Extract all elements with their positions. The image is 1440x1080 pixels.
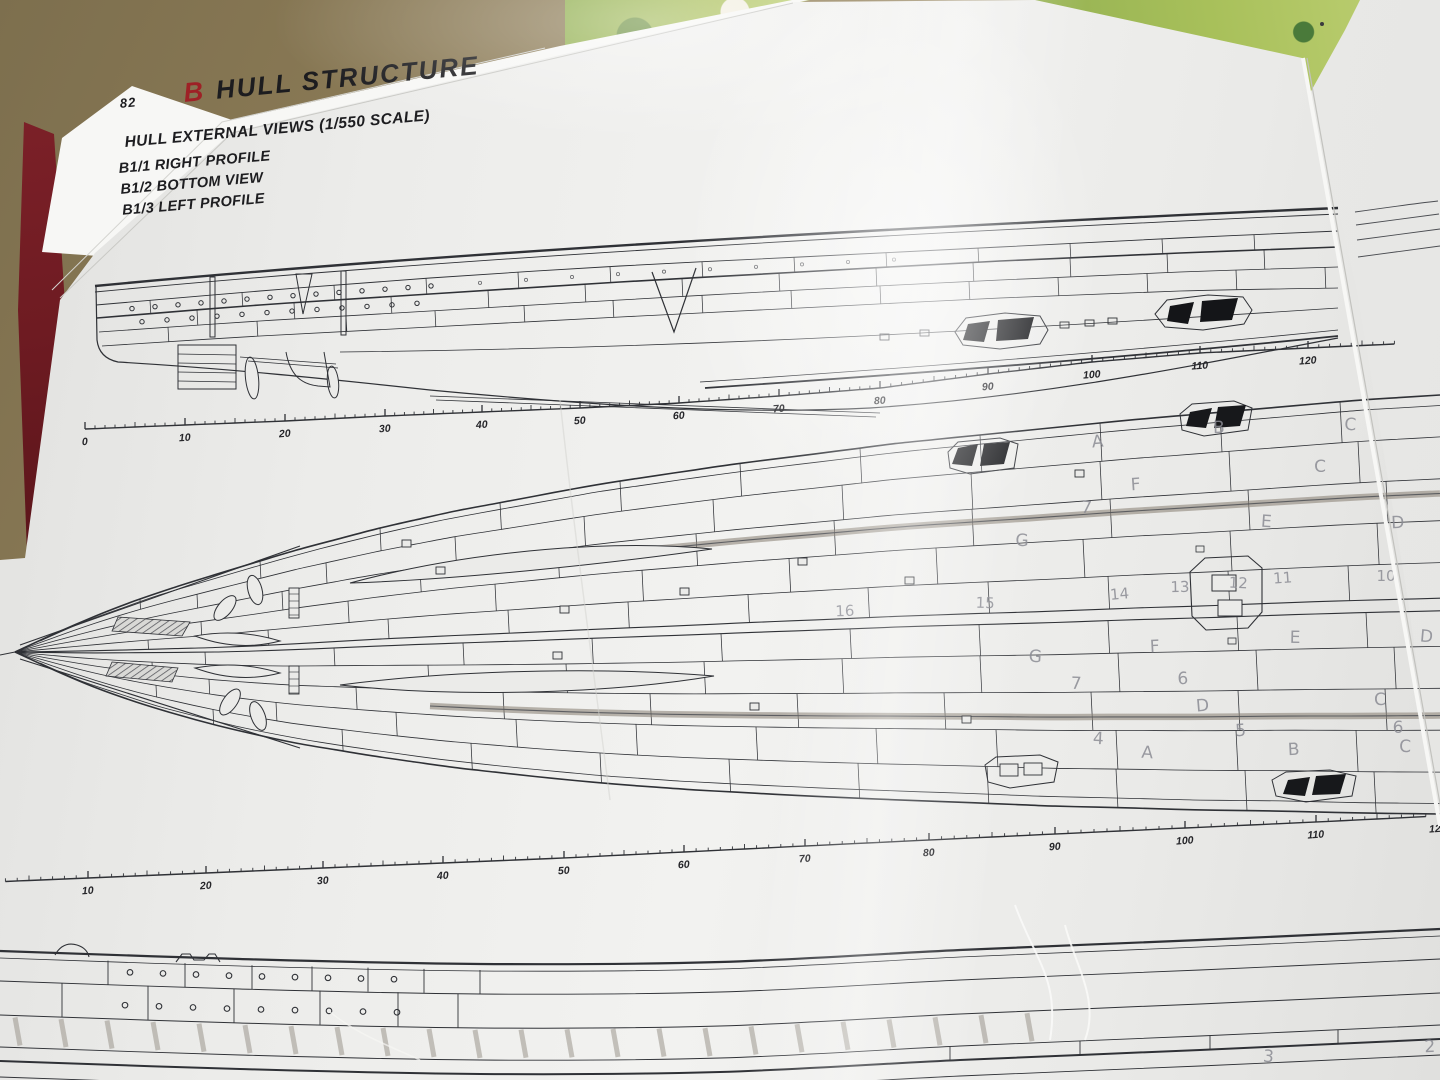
plate-butt (197, 594, 198, 608)
porthole (314, 292, 318, 296)
strut-ladder (289, 588, 299, 618)
plate-butt (850, 629, 852, 659)
sheer-seam (96, 231, 1338, 305)
top-ruler-label: 100 (1083, 368, 1101, 381)
pencil-mark: 6 (1393, 718, 1404, 738)
porthole (662, 270, 665, 273)
plate-butt (740, 463, 742, 496)
plate-butt (620, 481, 622, 511)
plate-butt (1356, 730, 1358, 771)
stern-post (210, 277, 215, 337)
porthole (429, 284, 433, 288)
view-list: B1/1 RIGHT PROFILE B1/2 BOTTOM VIEW B1/3… (118, 146, 275, 222)
plate-butt (524, 306, 525, 322)
plate-butt (1394, 647, 1396, 689)
pencil-mark: 7 (1070, 674, 1082, 694)
plate-butt (980, 435, 982, 472)
middle-ruler-label: 20 (199, 880, 213, 893)
plate-butt (996, 730, 998, 767)
bilge-keel-band (430, 706, 1440, 717)
propeller-plan (216, 686, 245, 719)
plate-butt (876, 268, 877, 286)
frame-stripe (337, 1027, 342, 1055)
plate-butt (971, 473, 973, 510)
middle-ruler-label: 110 (1307, 828, 1325, 841)
plate-butt (794, 257, 795, 272)
middle-ruler-label: 90 (1049, 841, 1062, 854)
pencil-mark: C (1399, 737, 1411, 757)
plate-butt (972, 509, 974, 546)
frame-stripe (613, 1029, 618, 1057)
top-ruler-label: 70 (773, 403, 786, 416)
plate-seam (0, 1025, 1440, 1060)
porthole (394, 1009, 400, 1015)
middle-ruler-line (5, 817, 1425, 882)
left-profile-drawing (0, 929, 1440, 1080)
plate-butt (435, 311, 436, 327)
plate-butt (973, 262, 974, 281)
plate-butt (868, 588, 870, 618)
anchor-pocket (1283, 777, 1310, 796)
frame-stripe (935, 1017, 940, 1045)
fairlead (1108, 318, 1117, 324)
deck-inner-line (95, 214, 1338, 292)
pencil-mark: 14 (1109, 584, 1130, 604)
plate-butt (636, 724, 638, 755)
page-number: 82 (119, 94, 137, 110)
vent-fitting (553, 652, 562, 659)
plate-butt (876, 728, 878, 763)
plate-butt (1230, 531, 1232, 571)
porthole (122, 1002, 128, 1008)
pencil-mark: D (1419, 626, 1434, 647)
plate-butt (518, 272, 519, 288)
pencil-mark: F (1149, 637, 1160, 657)
rudder-plan (195, 665, 280, 678)
top-ruler-label: 40 (475, 419, 489, 432)
plate-butt (463, 643, 464, 665)
plate-butt (426, 278, 427, 294)
frame-stripe (751, 1026, 756, 1054)
plate-butt (1116, 769, 1118, 808)
top-ruler-label: 90 (982, 381, 995, 394)
porthole (360, 289, 364, 293)
porthole (358, 976, 364, 982)
plate-butt (1058, 277, 1059, 295)
propeller-plan (244, 574, 265, 607)
frame-stripe (889, 1020, 894, 1048)
anchor-pocket (1200, 298, 1238, 322)
plate-butt (1162, 239, 1163, 254)
plate-seam (0, 993, 1440, 1028)
vent-fitting (962, 716, 971, 723)
porthole (265, 310, 269, 314)
page-edge-highlight (1303, 58, 1440, 826)
middle-ruler-label: 30 (317, 875, 330, 888)
pencil-mark: D (1391, 513, 1405, 534)
plate-butt (980, 656, 982, 693)
plate-butt (488, 290, 489, 307)
plate-butt (886, 253, 887, 268)
porthole (160, 971, 166, 977)
plate-butt (702, 262, 703, 278)
porthole (892, 258, 895, 261)
porthole (190, 1005, 196, 1011)
pencil-mark: C (1344, 415, 1357, 436)
porthole (315, 307, 319, 311)
porthole (415, 301, 419, 305)
plate-butt (334, 648, 335, 666)
anchor-pocket (1167, 302, 1194, 324)
plate-butt (242, 293, 243, 307)
plate-butt (702, 295, 703, 312)
plate-butt (842, 659, 844, 694)
pencil-mark: E (1290, 628, 1301, 648)
hawse-octagon (985, 755, 1058, 788)
plate-butt (748, 595, 749, 623)
pencil-mark: B (1213, 418, 1225, 438)
plate-butt (600, 753, 602, 783)
plating-seam (15, 646, 1440, 666)
hull-bottom-line (96, 286, 1338, 410)
vent-fitting (1075, 470, 1084, 477)
porthole (199, 301, 203, 305)
plate-butt (205, 652, 206, 664)
porthole (524, 278, 527, 281)
frame-stripe (981, 1015, 986, 1043)
sheer-seam (97, 247, 1338, 318)
plate-butt (642, 570, 644, 601)
plate-butt (391, 297, 392, 314)
plate-butt (1108, 621, 1110, 654)
stern-post (341, 271, 346, 335)
frame-stripe (107, 1021, 112, 1049)
plate-butt (348, 601, 349, 623)
plate-butt (729, 759, 731, 792)
page-crease (560, 400, 610, 800)
plate-butt (1254, 235, 1255, 250)
plate-butt (150, 300, 151, 313)
frame-stripe (797, 1024, 802, 1052)
hawse-plate (1024, 763, 1042, 775)
deck-edge-line (0, 929, 1440, 964)
frame-stripe (153, 1022, 158, 1050)
plate-butt (356, 688, 357, 710)
plate-butt (756, 727, 758, 760)
pencil-mark: G (1015, 531, 1029, 551)
middle-ruler-label: 60 (678, 859, 691, 872)
plate-butt (842, 485, 844, 520)
plate-butt (1118, 653, 1120, 692)
frame-stripe (61, 1019, 66, 1047)
photographed-book-page: 0102030405060708090100110120102030405060… (0, 0, 1440, 1080)
stern-grid-line (178, 354, 236, 355)
middle-ruler-label: 50 (558, 865, 571, 878)
small-fitting (1228, 638, 1236, 644)
top-ruler-label: 50 (574, 415, 587, 428)
porthole (325, 975, 331, 981)
small-fitting (1196, 546, 1204, 552)
skeg-fin (106, 662, 178, 682)
frame-stripe (567, 1029, 572, 1057)
deck-inner-line (0, 936, 1440, 971)
paper-speck (1320, 22, 1324, 26)
porthole (754, 265, 757, 268)
porthole (259, 974, 265, 980)
davit-triangle (296, 274, 312, 314)
vent-fitting (905, 577, 914, 584)
middle-ruler-label: 10 (82, 885, 95, 898)
porthole (290, 309, 294, 313)
pencil-mark: A (1091, 432, 1105, 453)
plate-butt (682, 279, 683, 297)
pencil-mark: B (1287, 740, 1300, 761)
boot-top-line (0, 1039, 1440, 1074)
plate-butt (508, 610, 509, 633)
plate-butt (1091, 692, 1093, 730)
shaft-bossing (340, 671, 714, 693)
vent-fitting (560, 606, 569, 613)
frame-stripe (843, 1022, 848, 1050)
porthole (406, 285, 410, 289)
plate-butt (516, 720, 517, 747)
porthole (127, 970, 133, 976)
plate-butt (257, 321, 258, 336)
vent-fitting (436, 567, 445, 574)
plate-butt (978, 248, 979, 262)
bottom-view-drawing (0, 395, 1440, 814)
porthole (224, 1006, 230, 1012)
rudder (286, 352, 330, 387)
scratch-mark (1065, 925, 1090, 1040)
plate-butt (276, 702, 277, 720)
frame-stripe (475, 1030, 480, 1058)
plate-butt (1147, 273, 1148, 292)
frame-stripe (199, 1024, 204, 1052)
porthole (153, 304, 157, 308)
vent-fitting (680, 588, 689, 595)
propeller (243, 356, 260, 399)
pencil-mark: C (1374, 690, 1386, 710)
plate-butt (1167, 254, 1168, 273)
plate-butt (1245, 771, 1247, 811)
porthole (846, 260, 849, 263)
porthole (240, 312, 244, 316)
page-top-edge (60, 3, 793, 298)
porthole (222, 299, 226, 303)
top-ruler-label: 60 (673, 410, 686, 423)
anchor-pocket (1312, 774, 1346, 795)
plate-butt (650, 694, 652, 725)
stern-tip (0, 652, 15, 655)
pencil-mark: E (1260, 512, 1272, 533)
plate-butt (500, 503, 501, 530)
porthole (190, 316, 194, 320)
pencil-mark: 5 (1235, 721, 1247, 742)
top-ruler-label: 80 (874, 395, 887, 408)
plate-butt (1248, 490, 1250, 530)
plate-butt (197, 310, 198, 325)
stern-grid-line (178, 381, 236, 382)
anchor-pocket (1186, 408, 1212, 428)
plate-butt (396, 712, 397, 736)
pencil-mark: D (1195, 695, 1210, 716)
shaft-bossing (350, 546, 712, 583)
plate-butt (860, 448, 862, 483)
top-ruler-label: 120 (1299, 354, 1317, 367)
frame-stripe (15, 1018, 20, 1046)
section-letter: B (182, 76, 204, 109)
plate-butt (789, 559, 791, 593)
plate-butt (334, 285, 335, 300)
anchor-pocket (980, 442, 1010, 466)
frame-stripe (705, 1028, 710, 1056)
hawse-plate (1000, 764, 1018, 776)
porthole (360, 1009, 366, 1015)
plate-butt (880, 286, 881, 304)
porthole (708, 268, 711, 271)
porthole (193, 972, 199, 978)
pencil-mark: 3 (1262, 1047, 1275, 1068)
plate-butt (260, 561, 261, 578)
pencil-mark: 12 (1228, 574, 1248, 593)
frame-stripe (291, 1026, 296, 1054)
porthole (292, 974, 298, 980)
middle-ruler-label: 40 (436, 870, 450, 883)
frame-stripe (1027, 1013, 1032, 1041)
pencil-mark: 11 (1272, 568, 1292, 587)
top-ruler-label: 110 (1191, 359, 1209, 372)
plate-butt (628, 602, 629, 628)
top-ruler-label: 0 (81, 436, 88, 448)
porthole (292, 1007, 298, 1013)
porthole (140, 320, 144, 324)
porthole (176, 303, 180, 307)
anchor-pocket (963, 321, 990, 342)
plate-butt (1229, 451, 1231, 491)
plate-butt (1348, 566, 1350, 601)
frame-stripe (383, 1028, 388, 1056)
stern-grid-line (178, 363, 236, 364)
plate-butt (1237, 617, 1239, 651)
plate-butt (1340, 402, 1342, 443)
plate-butt (1358, 442, 1360, 483)
frame-stripe (429, 1029, 434, 1057)
propeller (326, 366, 340, 399)
frame-stripe (521, 1030, 526, 1058)
pencil-mark: 13 (1170, 578, 1189, 596)
plate-butt (156, 686, 157, 698)
strut-ladder (289, 666, 299, 694)
plate-butt (213, 709, 214, 724)
plate-butt (1366, 613, 1368, 648)
plate-butt (791, 291, 792, 309)
rudder-plan (195, 633, 280, 646)
middle-ruler-label: 80 (923, 847, 936, 860)
hawse-plate (1218, 600, 1242, 616)
middle-ruler-label: 70 (799, 853, 812, 866)
plate-butt (495, 584, 496, 611)
plate-butt (1116, 730, 1118, 769)
pencil-mark: 16 (835, 602, 855, 621)
plate-butt (1264, 250, 1265, 270)
plate-butt (140, 599, 141, 609)
plate-butt (1083, 539, 1085, 577)
stern-grid-line (178, 372, 236, 373)
pencil-mark: 4 (1092, 729, 1104, 750)
plate-butt (1377, 523, 1379, 564)
porthole (800, 263, 803, 266)
plate-butt (1070, 244, 1071, 258)
pencil-mark: C (1314, 457, 1326, 477)
plate-butt (713, 500, 715, 532)
porthole (245, 297, 249, 301)
next-page-lines (1355, 201, 1440, 257)
scratch-mark (1015, 905, 1052, 1040)
plate-butt (342, 730, 343, 751)
porthole (340, 306, 344, 310)
plate-butt (471, 743, 472, 769)
porthole (383, 287, 387, 291)
plate-butt (388, 619, 389, 639)
plate-seam (0, 959, 1440, 994)
plate-butt (858, 763, 860, 798)
pencil-mark: 2 (1424, 1037, 1436, 1057)
vent-fitting (750, 703, 759, 710)
top-ruler-label: 10 (179, 432, 192, 445)
pencil-mark: 7 (1080, 498, 1093, 519)
plate-butt (148, 640, 149, 649)
plate-butt (1110, 499, 1112, 537)
sheer-seam (102, 288, 1338, 346)
vent-fitting (402, 540, 411, 547)
plate-butt (380, 528, 381, 551)
plate-butt (503, 692, 504, 719)
plate-butt (834, 521, 836, 556)
deck-fitting (55, 944, 89, 957)
plate-butt (944, 693, 946, 729)
plate-butt (969, 282, 970, 300)
hawse-octagon (1190, 556, 1262, 630)
propeller-plan (210, 592, 240, 624)
porthole (390, 303, 394, 307)
plate-butt (610, 267, 611, 283)
plate-butt (455, 537, 456, 563)
plate-butt (1325, 267, 1326, 288)
plate-butt (168, 327, 169, 342)
pencil-mark: F (1130, 475, 1141, 496)
plate-butt (326, 563, 327, 584)
porthole (156, 1004, 162, 1010)
vent-fitting (798, 558, 807, 565)
plate-butt (1374, 772, 1376, 813)
porthole (165, 318, 169, 322)
plate-butt (721, 634, 722, 662)
anchor-pocket (952, 444, 978, 466)
plate-butt (979, 625, 981, 656)
top-ruler-label: 30 (379, 423, 392, 436)
plate-butt (201, 622, 202, 636)
plate-butt (1070, 258, 1071, 277)
top-ruler-label: 20 (278, 428, 292, 441)
plate-butt (584, 516, 586, 546)
porthole (478, 281, 481, 284)
plate-butt (209, 679, 210, 694)
plate-butt (1236, 270, 1237, 290)
porthole (268, 295, 272, 299)
plate-butt (613, 300, 614, 317)
plate-butt (797, 694, 799, 728)
